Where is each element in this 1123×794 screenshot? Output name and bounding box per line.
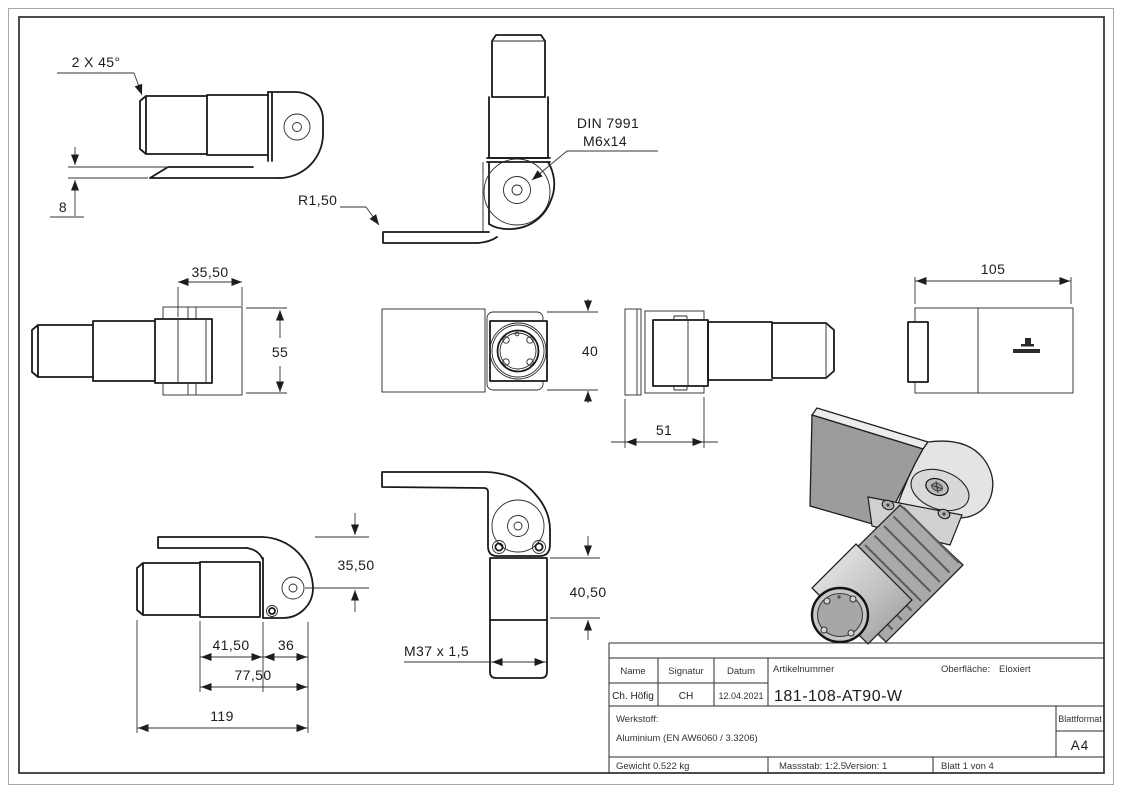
dim-overall-length: 119: [210, 708, 234, 724]
dim-chamfer: 2 X 45°: [72, 54, 121, 70]
title-date-value: 12.04.2021: [718, 691, 763, 701]
title-signature-label: Signatur: [668, 666, 703, 677]
title-article-label: Artikelnummer: [773, 664, 834, 675]
dim-body-depth: 51: [656, 422, 672, 438]
title-version: Version: 1: [845, 761, 887, 772]
dim-hole-offset: 35,50: [337, 557, 374, 573]
dim-thread-spec: M37 x 1,5: [404, 643, 469, 659]
title-format-label: Blattformat: [1058, 714, 1102, 724]
title-name-value: Ch. Höfig: [612, 691, 654, 702]
dim-body-width: 40: [582, 343, 598, 359]
drawing-sheet: 2 X 45° 8 R1,50 DIN 7991 M6x14: [0, 0, 1123, 794]
dim-plate-thickness: 8: [59, 199, 67, 215]
technical-drawing-canvas: 2 X 45° 8 R1,50 DIN 7991 M6x14: [0, 0, 1123, 794]
dim-screw-spec-1: DIN 7991: [577, 115, 639, 131]
title-date-label: Datum: [727, 666, 755, 677]
title-sheet-number: Blatt 1 von 4: [941, 761, 994, 772]
title-material-label: Werkstoff:: [616, 714, 658, 725]
title-surface-label: Oberfläche:: [941, 664, 990, 675]
title-scale: Massstab: 1:2.5: [779, 761, 846, 772]
title-material-value: Aluminium (EN AW6060 / 3.3206): [616, 733, 758, 744]
title-weight: Gewicht 0.522 kg: [616, 761, 689, 772]
title-surface-value: Eloxiert: [999, 664, 1031, 675]
dim-hinge-width: 35,50: [191, 264, 228, 280]
dim-seg-77-5: 77,50: [234, 667, 271, 683]
dim-fillet-radius: R1,50: [298, 192, 337, 208]
dim-screw-spec-2: M6x14: [583, 133, 627, 149]
dim-body-height: 55: [272, 344, 288, 360]
dim-front-height: 40,50: [569, 584, 606, 600]
dim-seg-36: 36: [278, 637, 294, 653]
dim-back-length: 105: [981, 261, 1006, 277]
title-article-number: 181-108-AT90-W: [774, 688, 903, 705]
title-signature-value: CH: [679, 691, 693, 702]
title-name-label: Name: [620, 666, 645, 677]
dim-seg-41-5: 41,50: [212, 637, 249, 653]
title-format-value: A4: [1071, 738, 1090, 753]
